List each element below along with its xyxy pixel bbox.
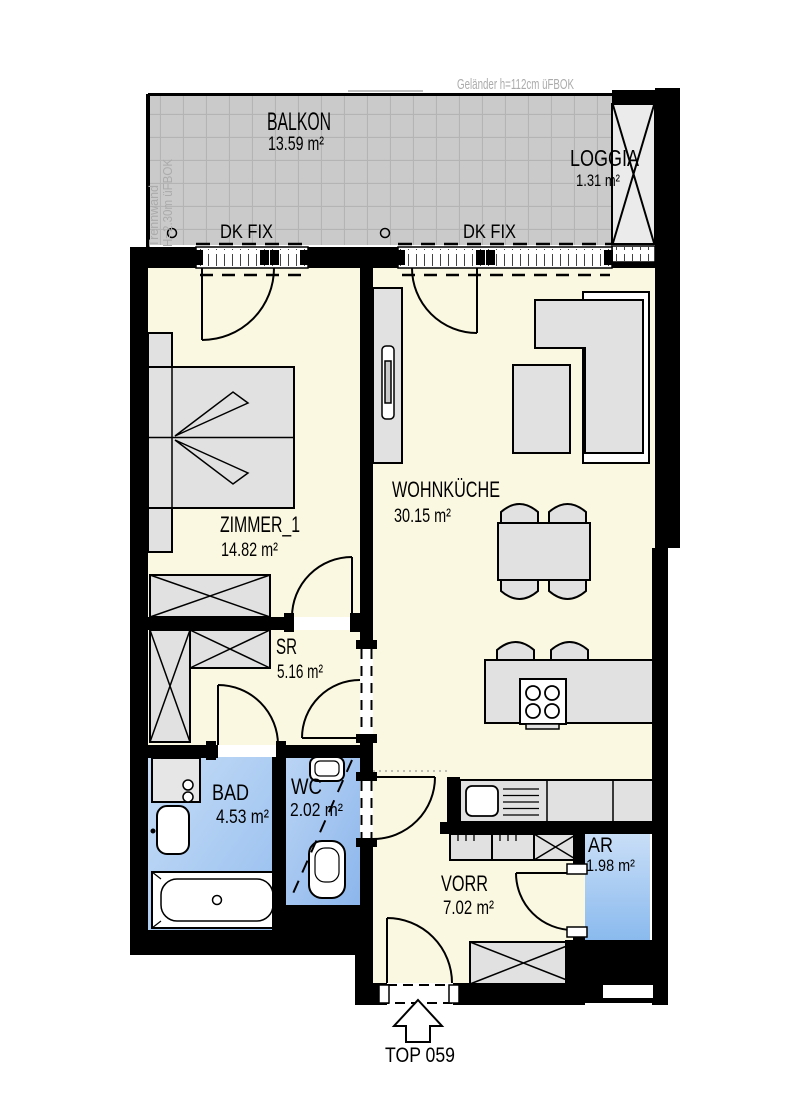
loggia-window-ticks bbox=[613, 247, 654, 261]
label-window-dkfix-2: DK FIX bbox=[463, 222, 516, 243]
floorplan-page: BALKON 13.59 m² LOGGIA 1.31 m² Geländer … bbox=[0, 0, 800, 1098]
label-vorr-area: 7.02 m² bbox=[443, 898, 494, 919]
washbasin bbox=[157, 806, 189, 854]
entrance-post bbox=[379, 985, 389, 1003]
window-frame-post bbox=[270, 250, 279, 265]
balcony-area bbox=[146, 90, 612, 247]
chair bbox=[501, 504, 538, 523]
label-zimmer1-area: 14.82 m² bbox=[221, 540, 278, 561]
bathtub-drain bbox=[213, 896, 222, 905]
wall-kitchen-vorr bbox=[440, 822, 657, 834]
cooktop-burner bbox=[526, 704, 540, 718]
window-frame-post bbox=[300, 250, 309, 265]
label-sr-area: 5.16 m² bbox=[277, 662, 323, 683]
label-balkon-name: BALKON bbox=[267, 108, 331, 136]
wall-mid-vertical-1 bbox=[360, 268, 373, 648]
wall-top-right bbox=[612, 262, 655, 268]
label-railing-note: Geländer h=112cm üFBOK bbox=[457, 76, 574, 93]
wall-bottom-left bbox=[130, 930, 373, 955]
window-frame-post bbox=[396, 250, 405, 265]
window-wohnkueche-ticks bbox=[399, 249, 611, 266]
chair bbox=[549, 580, 586, 599]
label-sr-name: SR bbox=[276, 634, 297, 659]
door-post bbox=[206, 741, 216, 760]
cooktop-burner bbox=[545, 686, 559, 700]
washer-knob bbox=[183, 792, 193, 802]
wall-bad-wc bbox=[272, 757, 286, 935]
floorplan-svg: BALKON 13.59 m² LOGGIA 1.31 m² Geländer … bbox=[0, 0, 800, 1098]
window-frame-post bbox=[604, 250, 613, 265]
railing-leader-line bbox=[348, 90, 423, 92]
wall-niche bbox=[603, 985, 653, 998]
cooktop-burner bbox=[545, 704, 559, 718]
window-frame-post bbox=[476, 250, 485, 265]
cooktop-panel bbox=[526, 724, 559, 729]
label-ar-name: AR bbox=[588, 834, 613, 857]
label-wohnkueche-area: 30.15 m² bbox=[394, 506, 451, 527]
label-vorr-name: VORR bbox=[441, 871, 488, 896]
door-jamb-tab bbox=[567, 864, 587, 874]
cooktop bbox=[520, 679, 566, 724]
cabinet bbox=[492, 834, 534, 860]
wall-sr-wc bbox=[278, 745, 360, 758]
wall-right-upper bbox=[655, 88, 680, 548]
label-loggia-area: 1.31 m² bbox=[576, 171, 620, 190]
coffee-table bbox=[513, 365, 570, 453]
washer-knob bbox=[183, 780, 193, 790]
label-wohnkueche-name: WOHNKÜCHE bbox=[392, 477, 500, 502]
window-frame-post bbox=[194, 250, 203, 265]
label-entrance: TOP 059 bbox=[385, 1044, 455, 1067]
entrance-post bbox=[449, 985, 459, 1003]
window-frame-post bbox=[260, 250, 269, 265]
label-zimmer1-name: ZIMMER_1 bbox=[220, 512, 300, 537]
window-frame-post bbox=[486, 250, 495, 265]
wall-counter-pier bbox=[447, 777, 460, 822]
loggia-top-wall bbox=[612, 90, 655, 104]
label-wc-name: WC bbox=[291, 774, 322, 799]
label-balkon-area: 13.59 m² bbox=[268, 134, 324, 155]
chair bbox=[549, 504, 586, 523]
label-partition-note: Trennwand bbox=[147, 185, 161, 247]
label-bad-area: 4.53 m² bbox=[216, 807, 269, 828]
dining-table bbox=[498, 523, 590, 580]
wall-top-pier bbox=[308, 247, 398, 268]
cooktop-burner bbox=[526, 686, 540, 700]
wall-connector bbox=[355, 930, 373, 985]
kitchen-island bbox=[485, 660, 657, 723]
wall-zimmer-sr bbox=[130, 617, 290, 630]
nightstand bbox=[148, 333, 172, 367]
wall-right-lower bbox=[652, 548, 668, 1005]
label-partition-note-height: H=2.30m üFBOK bbox=[161, 158, 175, 247]
label-loggia-name: LOGGIA bbox=[570, 145, 640, 171]
label-window-dkfix-1: DK FIX bbox=[220, 222, 273, 243]
wall-top-a bbox=[130, 247, 196, 268]
label-wc-area: 2.02 m² bbox=[290, 800, 343, 820]
wall-left bbox=[130, 247, 148, 935]
door-jamb-tab bbox=[567, 927, 587, 937]
label-bad-name: BAD bbox=[212, 780, 249, 805]
cabinet bbox=[450, 834, 492, 860]
nightstand bbox=[148, 508, 172, 552]
faucet bbox=[151, 829, 156, 834]
kitchen-sink bbox=[466, 786, 498, 816]
window-zimmer-ticks bbox=[197, 249, 307, 266]
balcony-railing bbox=[148, 93, 612, 96]
entrance-arrow-icon bbox=[394, 1000, 442, 1042]
wall-entrance-right bbox=[453, 983, 585, 1005]
chair bbox=[501, 580, 538, 599]
toilet-bowl bbox=[315, 848, 339, 882]
label-ar-area: 1.98 m² bbox=[586, 856, 635, 875]
opening-tab bbox=[356, 640, 377, 649]
balcony-drain bbox=[381, 229, 390, 238]
tv-screen bbox=[385, 361, 391, 403]
